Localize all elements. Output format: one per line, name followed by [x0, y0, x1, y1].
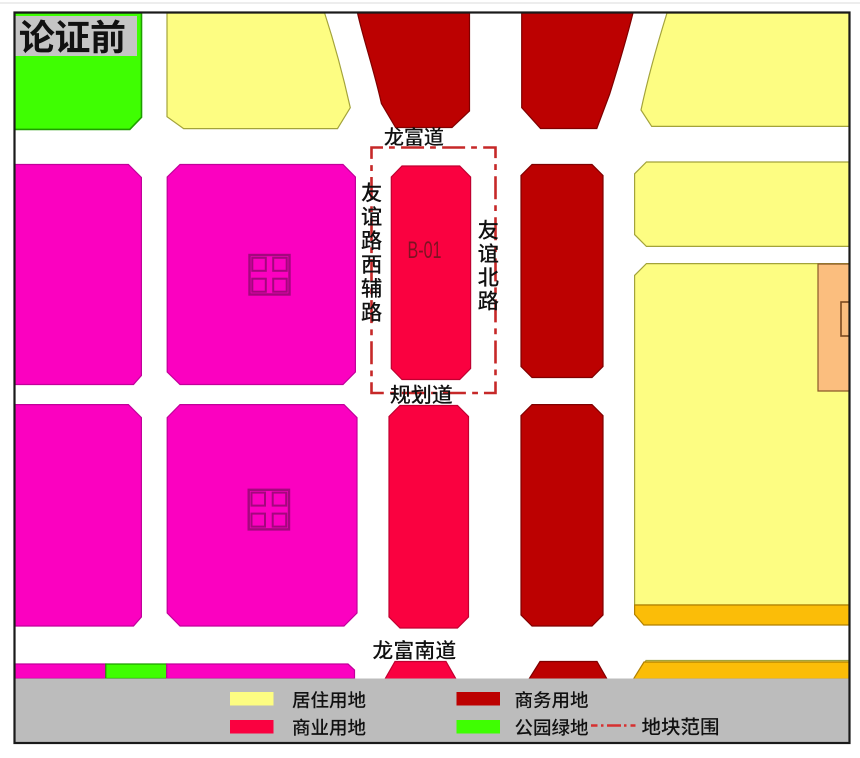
- svg-text:B-01: B-01: [408, 237, 442, 264]
